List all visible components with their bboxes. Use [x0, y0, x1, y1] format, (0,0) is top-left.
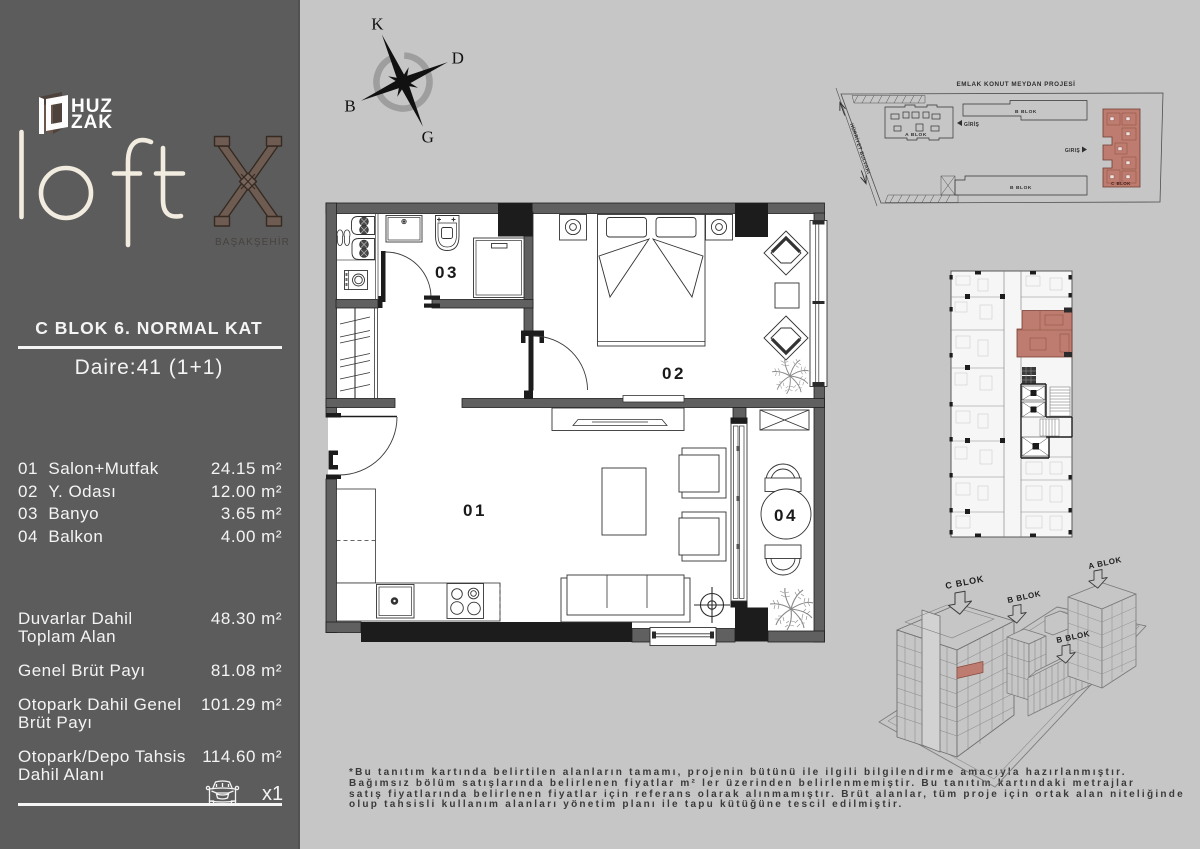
svg-text:B BLOK: B BLOK	[1010, 185, 1032, 191]
svg-text:C BLOK: C BLOK	[944, 574, 984, 591]
svg-text:03: 03	[435, 263, 459, 282]
svg-text:C BLOK: C BLOK	[1111, 181, 1131, 186]
svg-text:D: D	[452, 49, 464, 68]
svg-text:EMLAK KONUT MEYDAN PROJESİ: EMLAK KONUT MEYDAN PROJESİ	[957, 80, 1076, 88]
svg-text:B BLOK: B BLOK	[1007, 589, 1042, 605]
svg-text:A BLOK: A BLOK	[905, 132, 927, 138]
svg-text:B: B	[344, 97, 355, 116]
svg-text:A BLOK: A BLOK	[1088, 555, 1123, 571]
svg-text:HÜRRİYET BULVARI: HÜRRİYET BULVARI	[848, 122, 872, 175]
svg-text:GIRIŞ: GIRIŞ	[1065, 148, 1080, 154]
svg-text:02: 02	[662, 364, 686, 383]
svg-text:04: 04	[774, 506, 798, 525]
svg-text:K: K	[371, 14, 384, 33]
svg-text:01: 01	[463, 501, 487, 520]
svg-text:GİRİŞ: GİRİŞ	[964, 121, 979, 128]
svg-text:G: G	[422, 128, 434, 147]
svg-text:B BLOK: B BLOK	[1015, 109, 1037, 115]
